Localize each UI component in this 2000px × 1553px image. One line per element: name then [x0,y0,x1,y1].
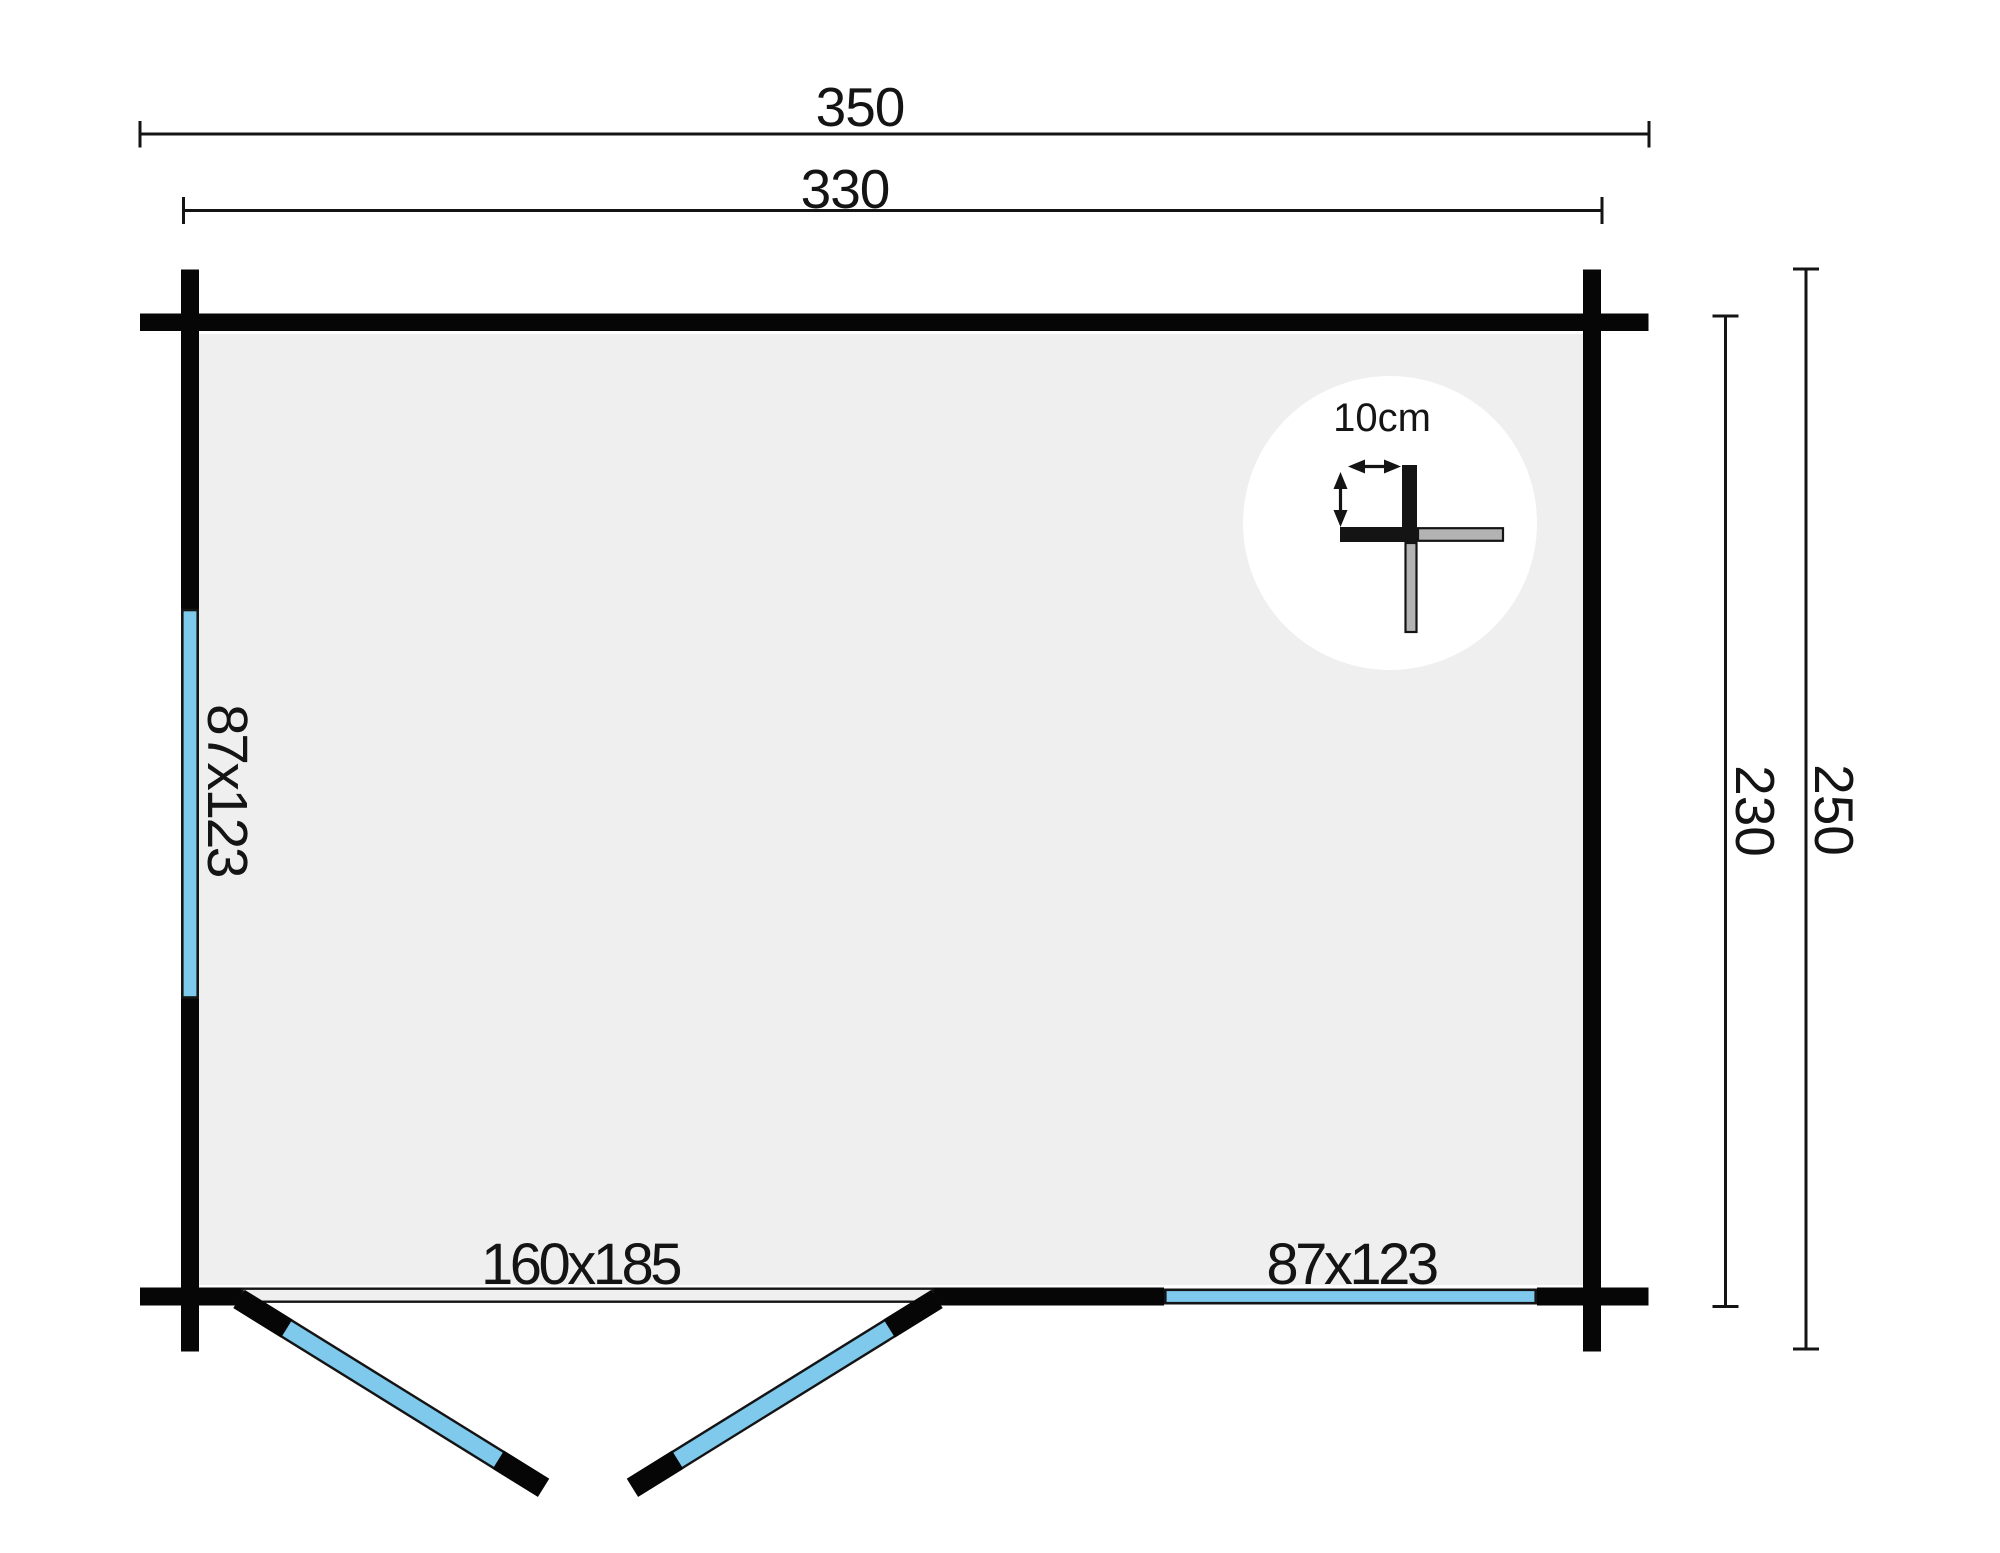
svg-text:250: 250 [1803,764,1865,856]
svg-text:350: 350 [816,76,905,138]
svg-text:87x123: 87x123 [1266,1232,1437,1297]
svg-text:87x123: 87x123 [195,704,259,877]
svg-text:230: 230 [1724,765,1786,857]
svg-text:160x185: 160x185 [481,1232,680,1297]
svg-text:10cm: 10cm [1333,396,1431,440]
svg-text:330: 330 [801,158,890,220]
